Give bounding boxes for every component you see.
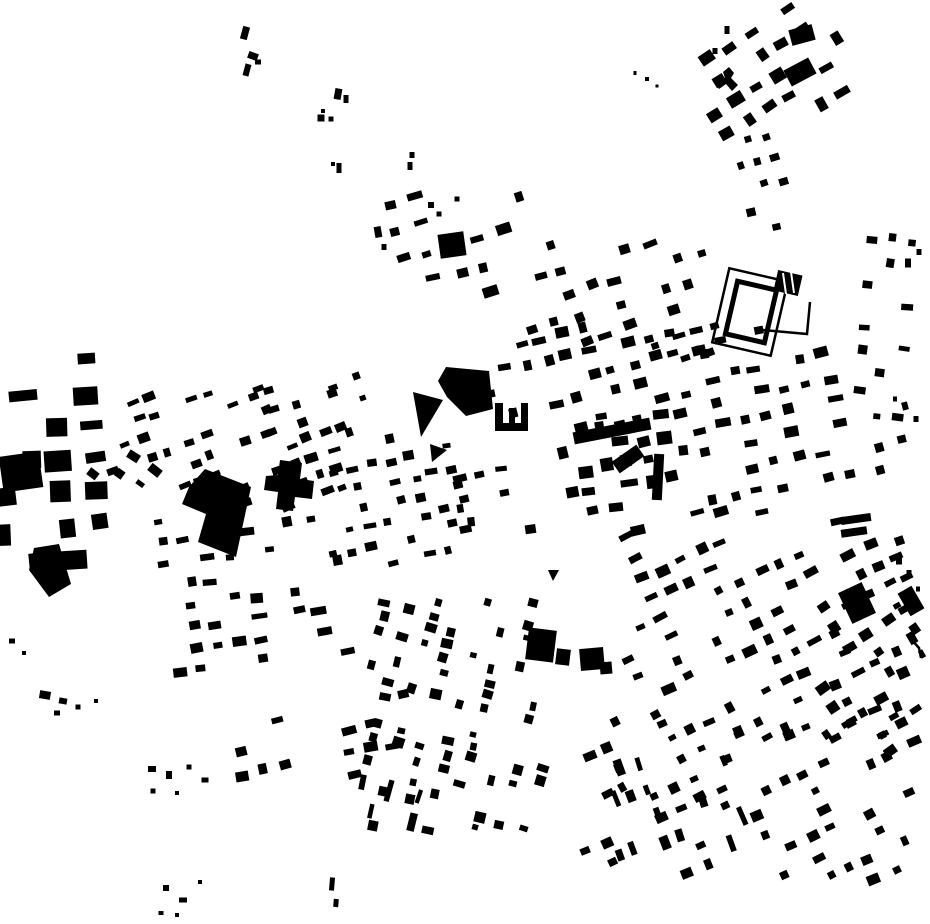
district-top-mid-east: [526, 238, 715, 362]
district-north-core: [484, 321, 701, 420]
district-tr-corner: [698, 2, 851, 141]
district-se-main: [618, 530, 922, 747]
cross-building: [264, 460, 314, 511]
factory-l-building: [182, 469, 251, 557]
district-east-district: [693, 345, 856, 526]
u-shaped-building: [495, 403, 528, 431]
district-west-central: [329, 433, 473, 567]
landmark-buildings: [0, 24, 924, 674]
district-tr-tail: [737, 133, 789, 231]
district-sw-rows: [235, 689, 410, 783]
district-south-columns: [362, 598, 549, 836]
district-core-south-gap: [630, 505, 729, 537]
figure-ground-map: [0, 0, 930, 924]
building-footprints-canvas: [0, 0, 930, 924]
central-hall-block: [438, 367, 493, 416]
district-se-east: [815, 600, 923, 758]
district-nw-approach: [252, 371, 366, 437]
bullring-inner-ring: [725, 281, 776, 343]
plaza-triangle-mark: [548, 570, 559, 581]
district-west-rows: [154, 515, 355, 677]
wedge-building-1: [413, 392, 443, 437]
se-curve-wall: [912, 640, 921, 658]
district-center-south: [447, 466, 537, 535]
